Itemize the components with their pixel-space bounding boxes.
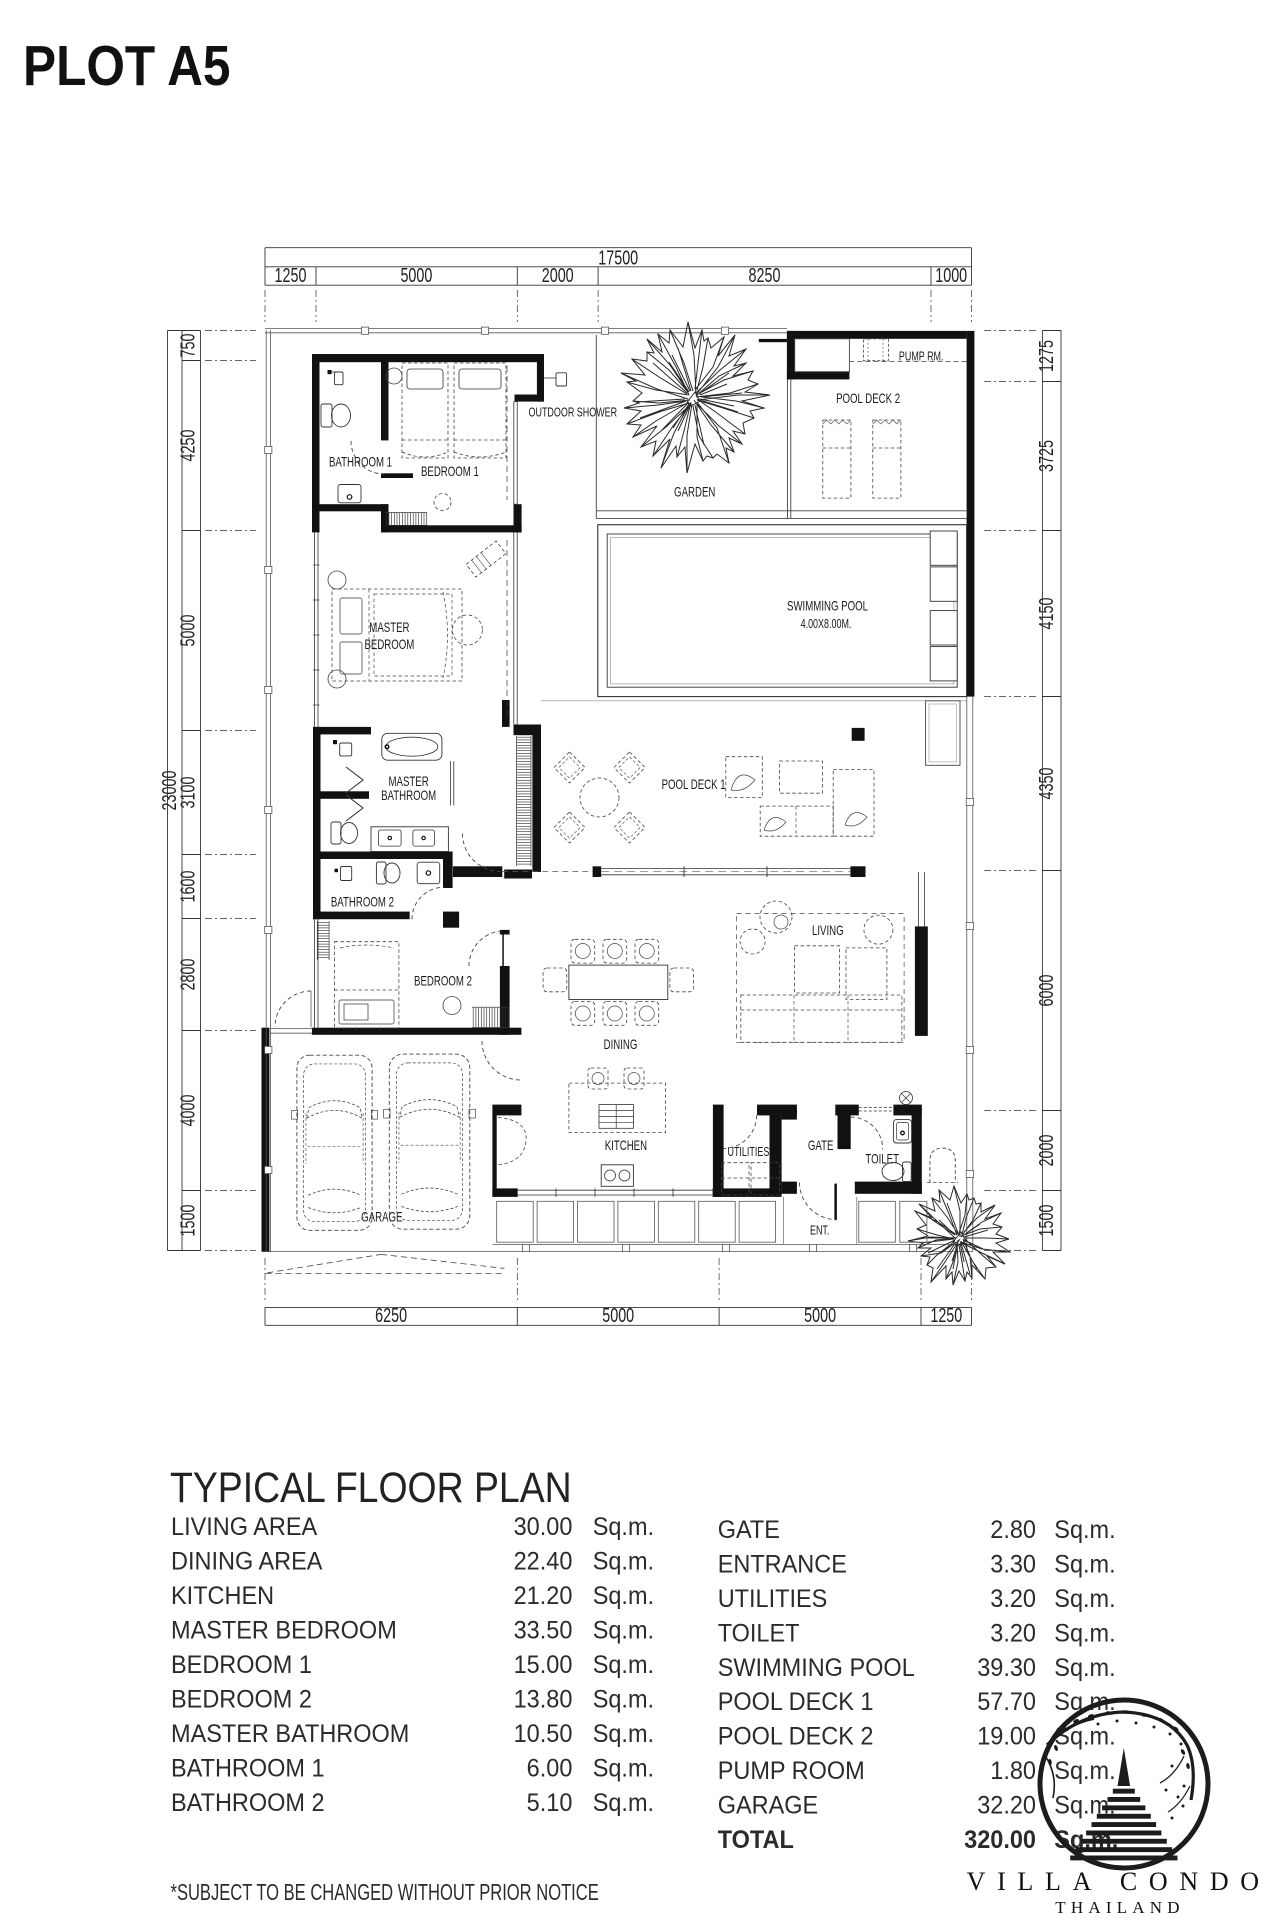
svg-text:Sq.m.: Sq.m.	[1054, 1551, 1115, 1579]
svg-text:PLOT A5: PLOT A5	[23, 35, 231, 98]
svg-text:1250: 1250	[275, 263, 307, 286]
svg-text:BEDROOM 2: BEDROOM 2	[414, 973, 472, 989]
svg-text:5000: 5000	[400, 263, 432, 286]
svg-text:22.40: 22.40	[514, 1548, 573, 1576]
svg-text:57.70: 57.70	[977, 1689, 1036, 1717]
svg-text:PUMP RM.: PUMP RM.	[899, 350, 944, 364]
svg-text:6000: 6000	[1034, 974, 1057, 1006]
svg-text:4150: 4150	[1034, 597, 1057, 629]
svg-text:8250: 8250	[749, 263, 781, 286]
svg-text:15.00: 15.00	[514, 1651, 573, 1679]
svg-text:1500: 1500	[176, 1204, 199, 1236]
svg-text:3100: 3100	[176, 776, 199, 808]
svg-text:SWIMMING POOL: SWIMMING POOL	[718, 1654, 915, 1682]
svg-text:BATHROOM 1: BATHROOM 1	[329, 454, 392, 470]
svg-text:DINING AREA: DINING AREA	[171, 1548, 323, 1576]
svg-text:Sq.m.: Sq.m.	[1054, 1654, 1115, 1682]
svg-text:32.20: 32.20	[977, 1792, 1036, 1820]
svg-text:1500: 1500	[1034, 1204, 1057, 1236]
svg-text:UTILITIES: UTILITIES	[727, 1146, 769, 1160]
svg-text:MASTER BATHROOM: MASTER BATHROOM	[171, 1720, 409, 1748]
svg-text:320.00: 320.00	[964, 1826, 1036, 1854]
svg-text:2000: 2000	[542, 263, 574, 286]
svg-text:19.00: 19.00	[977, 1723, 1036, 1751]
svg-text:ENTRANCE: ENTRANCE	[718, 1551, 847, 1579]
svg-text:21.20: 21.20	[514, 1582, 573, 1610]
svg-text:Sq.m.: Sq.m.	[593, 1514, 654, 1542]
svg-text:Sq.m.: Sq.m.	[1054, 1516, 1115, 1544]
svg-text:BATHROOM: BATHROOM	[381, 787, 436, 803]
svg-text:30.00: 30.00	[514, 1514, 573, 1542]
svg-text:KITCHEN: KITCHEN	[605, 1137, 647, 1153]
svg-text:6250: 6250	[375, 1303, 407, 1326]
svg-text:TOILET: TOILET	[718, 1620, 800, 1648]
svg-text:POOL DECK 1: POOL DECK 1	[718, 1689, 874, 1717]
svg-text:4000: 4000	[176, 1094, 199, 1126]
svg-text:GARAGE: GARAGE	[361, 1209, 402, 1225]
svg-text:33.50: 33.50	[514, 1617, 573, 1645]
svg-text:3.20: 3.20	[990, 1620, 1036, 1648]
svg-text:GARDEN: GARDEN	[674, 484, 715, 500]
svg-text:BEDROOM: BEDROOM	[364, 636, 414, 652]
svg-text:Sq.m.: Sq.m.	[1054, 1585, 1115, 1613]
svg-text:2.80: 2.80	[990, 1516, 1036, 1544]
svg-text:BATHROOM 1: BATHROOM 1	[171, 1755, 325, 1783]
svg-text:THAILAND: THAILAND	[1055, 1898, 1184, 1917]
svg-text:BATHROOM 2: BATHROOM 2	[331, 893, 394, 909]
svg-text:Sq.m.: Sq.m.	[593, 1686, 654, 1714]
svg-text:750: 750	[176, 333, 199, 357]
svg-text:1275: 1275	[1034, 340, 1057, 372]
svg-text:GATE: GATE	[718, 1516, 780, 1544]
svg-text:SWIMMING POOL: SWIMMING POOL	[787, 598, 868, 614]
svg-text:ENT.: ENT.	[810, 1224, 829, 1238]
svg-text:1000: 1000	[935, 263, 967, 286]
svg-text:Sq.m.: Sq.m.	[593, 1720, 654, 1748]
svg-text:17500: 17500	[598, 246, 638, 269]
svg-text:OUTDOOR SHOWER: OUTDOOR SHOWER	[528, 406, 617, 420]
svg-text:5000: 5000	[602, 1303, 634, 1326]
svg-text:4.00X8.00M.: 4.00X8.00M.	[801, 617, 852, 631]
svg-text:5000: 5000	[804, 1303, 836, 1326]
svg-text:4350: 4350	[1034, 767, 1057, 799]
svg-text:Sq.m.: Sq.m.	[593, 1617, 654, 1645]
svg-text:BEDROOM 1: BEDROOM 1	[421, 463, 479, 479]
svg-text:POOL DECK 2: POOL DECK 2	[718, 1723, 874, 1751]
svg-text:POOL DECK 2: POOL DECK 2	[836, 390, 900, 406]
svg-text:PUMP ROOM: PUMP ROOM	[718, 1758, 865, 1786]
svg-text:Sq.m.: Sq.m.	[593, 1582, 654, 1610]
svg-text:2000: 2000	[1034, 1134, 1057, 1166]
svg-text:GARAGE: GARAGE	[718, 1792, 819, 1820]
svg-text:Sq.m.: Sq.m.	[1054, 1758, 1115, 1786]
svg-text:6.00: 6.00	[527, 1755, 573, 1783]
svg-text:1600: 1600	[176, 870, 199, 902]
svg-text:Sq.m.: Sq.m.	[593, 1651, 654, 1679]
svg-text:3725: 3725	[1034, 440, 1057, 472]
svg-text:POOL DECK 1: POOL DECK 1	[662, 776, 726, 792]
svg-text:LIVING: LIVING	[812, 922, 844, 938]
svg-text:Sq.m.: Sq.m.	[593, 1789, 654, 1817]
svg-text:GATE: GATE	[808, 1137, 834, 1153]
svg-text:13.80: 13.80	[514, 1686, 573, 1714]
svg-text:Sq.m.: Sq.m.	[1054, 1620, 1115, 1648]
svg-text:Sq.m.: Sq.m.	[593, 1548, 654, 1576]
svg-text:TOILET: TOILET	[865, 1150, 899, 1166]
svg-text:KITCHEN: KITCHEN	[171, 1582, 274, 1610]
svg-text:UTILITIES: UTILITIES	[718, 1585, 828, 1613]
svg-text:BEDROOM 2: BEDROOM 2	[171, 1686, 312, 1714]
svg-text:5.10: 5.10	[527, 1789, 573, 1817]
svg-text:TYPICAL FLOOR PLAN: TYPICAL FLOOR PLAN	[170, 1465, 572, 1512]
svg-text:1250: 1250	[930, 1303, 962, 1326]
svg-text:DINING: DINING	[604, 1036, 638, 1052]
svg-text:TOTAL: TOTAL	[718, 1826, 794, 1854]
svg-text:MASTER: MASTER	[369, 619, 409, 635]
svg-text:BEDROOM 1: BEDROOM 1	[171, 1651, 312, 1679]
svg-text:1.80: 1.80	[990, 1758, 1036, 1786]
svg-text:10.50: 10.50	[514, 1720, 573, 1748]
svg-text:MASTER BEDROOM: MASTER BEDROOM	[171, 1617, 397, 1645]
svg-text:3.20: 3.20	[990, 1585, 1036, 1613]
svg-text:39.30: 39.30	[977, 1654, 1036, 1682]
svg-text:4250: 4250	[176, 429, 199, 461]
svg-text:Sq.m.: Sq.m.	[593, 1755, 654, 1783]
svg-text:3.30: 3.30	[990, 1551, 1036, 1579]
svg-text:*SUBJECT TO BE CHANGED WITHOUT: *SUBJECT TO BE CHANGED WITHOUT PRIOR NOT…	[171, 1880, 599, 1905]
svg-text:VILLA CONDO: VILLA CONDO	[967, 1867, 1271, 1896]
svg-text:BATHROOM 2: BATHROOM 2	[171, 1789, 325, 1817]
svg-text:5000: 5000	[176, 614, 199, 646]
svg-text:2800: 2800	[176, 958, 199, 990]
svg-text:LIVING AREA: LIVING AREA	[171, 1514, 318, 1542]
